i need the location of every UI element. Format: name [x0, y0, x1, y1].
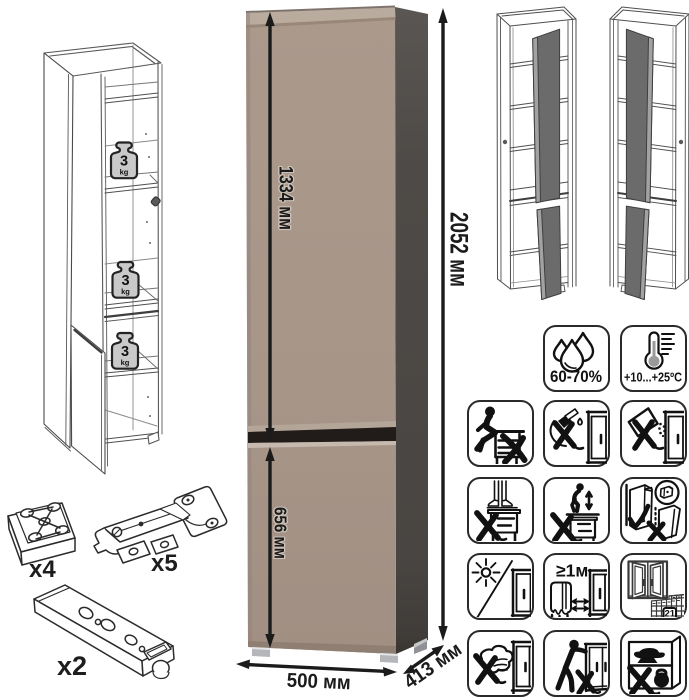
- svg-text:500 мм: 500 мм: [286, 670, 351, 695]
- svg-text:x5: x5: [151, 550, 178, 577]
- svg-text:2052 мм: 2052 мм: [445, 212, 473, 287]
- svg-text:+10...+25ºC: +10...+25ºC: [624, 371, 682, 385]
- svg-text:x4: x4: [29, 556, 56, 583]
- svg-text:x2: x2: [57, 651, 87, 681]
- svg-text:kg: kg: [120, 168, 129, 177]
- svg-text:60-70%: 60-70%: [550, 368, 602, 386]
- svg-text:21: 21: [665, 609, 676, 618]
- svg-text:1334 мм: 1334 мм: [275, 166, 297, 230]
- svg-text:656 мм: 656 мм: [271, 507, 291, 559]
- svg-text:≥1м: ≥1м: [556, 561, 588, 581]
